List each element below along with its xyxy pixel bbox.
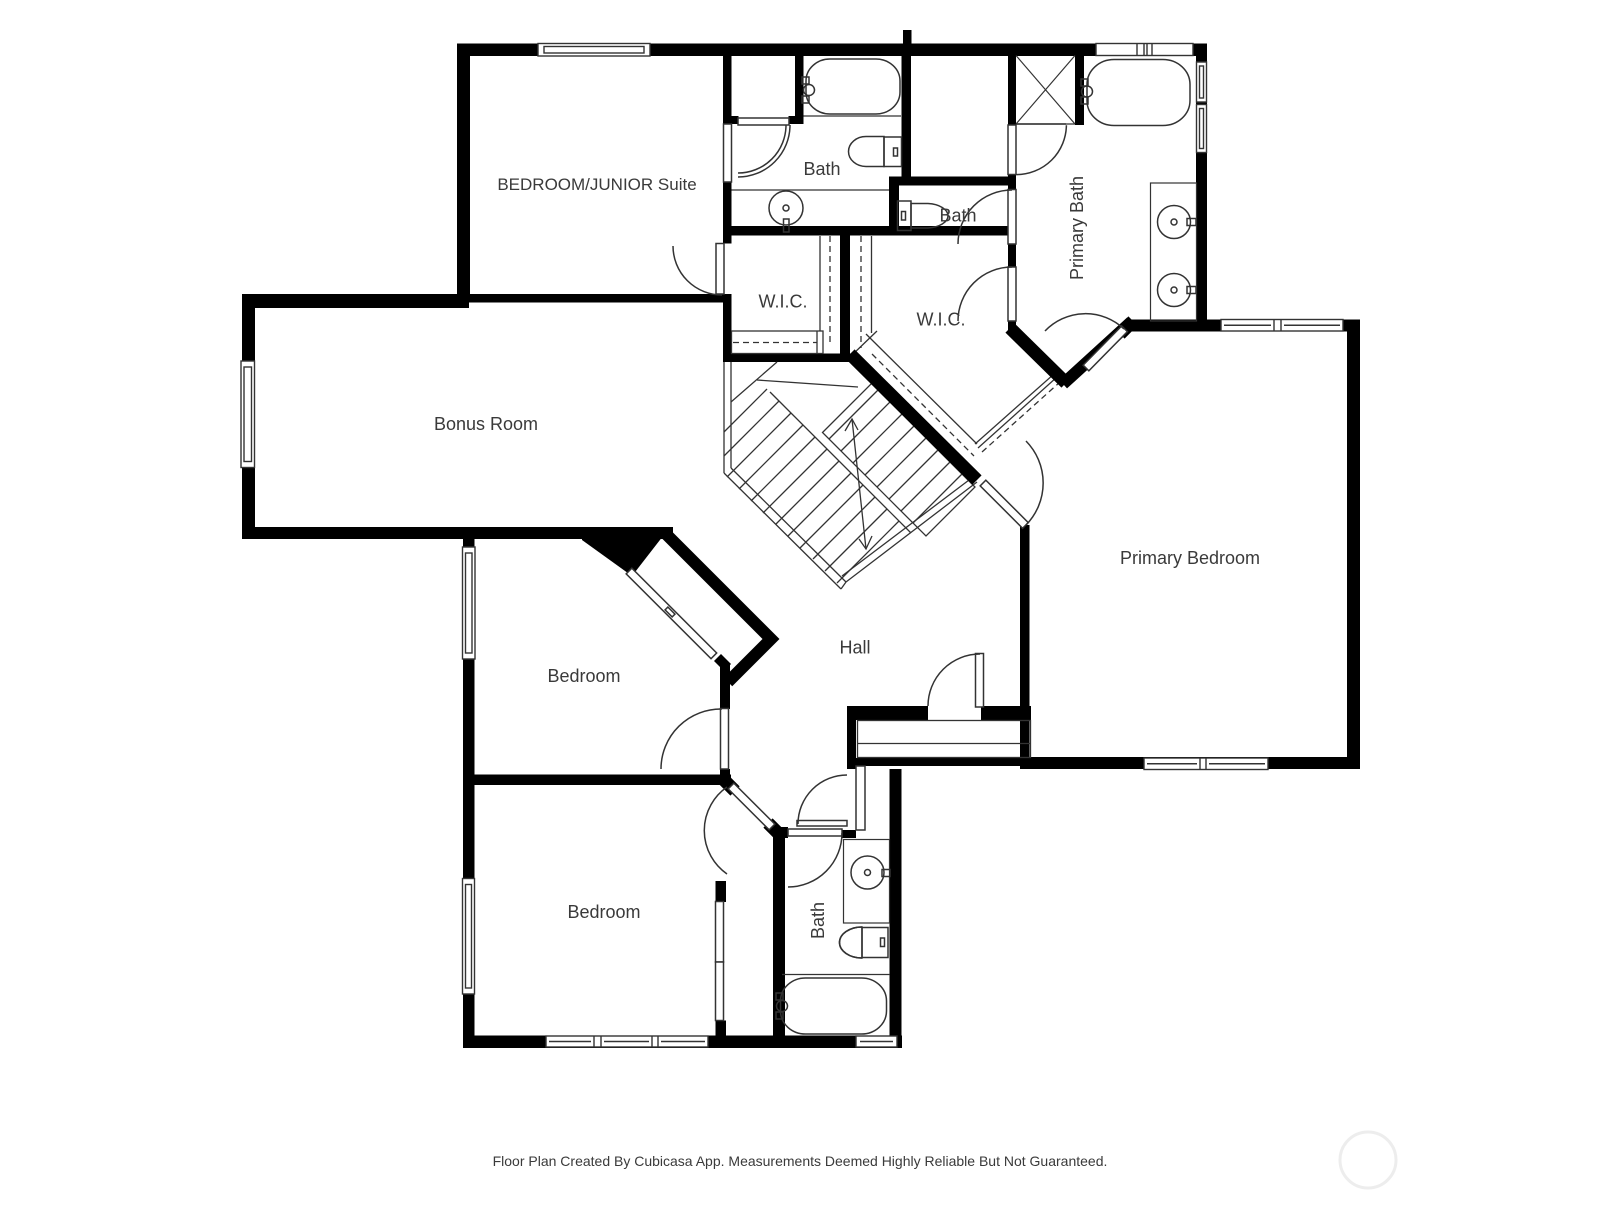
svg-text:Bedroom: Bedroom — [547, 666, 620, 686]
svg-text:Primary Bedroom: Primary Bedroom — [1120, 548, 1260, 568]
svg-text:Bath: Bath — [939, 206, 976, 226]
svg-text:Primary Bath: Primary Bath — [1067, 176, 1087, 280]
svg-text:Bath: Bath — [808, 902, 828, 939]
svg-text:Bath: Bath — [803, 159, 840, 179]
svg-text:W.I.C.: W.I.C. — [759, 292, 808, 312]
svg-text:BEDROOM/JUNIOR Suite: BEDROOM/JUNIOR Suite — [497, 175, 696, 194]
svg-text:Hall: Hall — [839, 638, 870, 658]
svg-text:Floor Plan Created By Cubicasa: Floor Plan Created By Cubicasa App. Meas… — [493, 1153, 1108, 1169]
svg-text:Bonus Room: Bonus Room — [434, 414, 538, 434]
svg-text:Bedroom: Bedroom — [567, 902, 640, 922]
svg-text:W.I.C.: W.I.C. — [917, 310, 966, 330]
